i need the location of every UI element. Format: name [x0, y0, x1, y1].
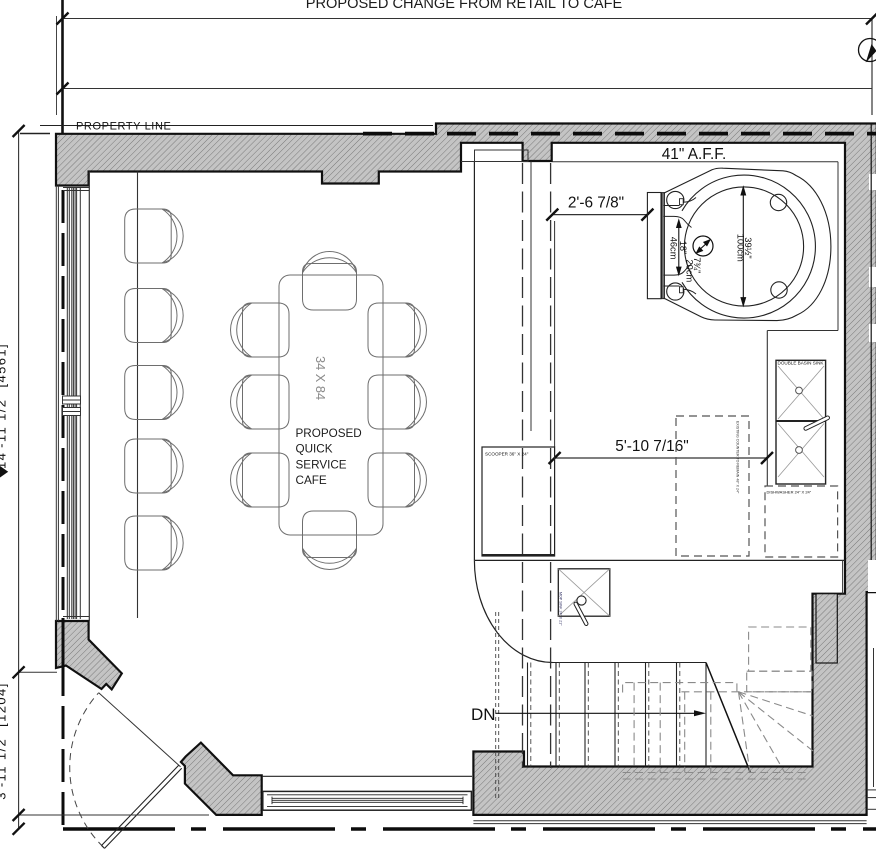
svg-text:PROPERTY LINE: PROPERTY LINE — [76, 121, 171, 133]
svg-text:46cm: 46cm — [669, 237, 679, 260]
svg-text:100cm: 100cm — [735, 234, 745, 262]
svg-text:2'-6 7/8": 2'-6 7/8" — [568, 195, 624, 212]
svg-text:QUICK: QUICK — [296, 443, 333, 456]
svg-text:14'-11 1/2" [4561]: 14'-11 1/2" [4561] — [0, 343, 9, 469]
svg-text:20cm: 20cm — [685, 260, 695, 283]
svg-text:5'-10 7/16": 5'-10 7/16" — [615, 438, 688, 455]
svg-text:CAFE: CAFE — [296, 474, 327, 487]
svg-text:PROPOSED CHANGE FROM RETAIL TO: PROPOSED CHANGE FROM RETAIL TO CAFE — [306, 0, 623, 12]
svg-text:3'-11 1/2" [1204]: 3'-11 1/2" [1204] — [0, 682, 9, 799]
svg-text:SERVICE: SERVICE — [296, 458, 347, 471]
svg-text:PROPOSED: PROPOSED — [296, 427, 362, 440]
svg-text:EXISTING COUNTER TO REMAIN 48": EXISTING COUNTER TO REMAIN 48" X 24" — [736, 421, 740, 494]
svg-text:41" A.F.F.: 41" A.F.F. — [662, 146, 727, 163]
svg-text:34 X 84: 34 X 84 — [313, 356, 328, 400]
svg-text:MOP SINK 24" X 21": MOP SINK 24" X 21" — [559, 592, 563, 626]
svg-text:DISHWASHER 24" X 24": DISHWASHER 24" X 24" — [767, 490, 812, 495]
svg-text:DN: DN — [471, 705, 496, 724]
svg-text:SCOOPER 36" X 24": SCOOPER 36" X 24" — [485, 452, 529, 457]
svg-text:DOUBLE BASIN SINK: DOUBLE BASIN SINK — [778, 360, 825, 365]
